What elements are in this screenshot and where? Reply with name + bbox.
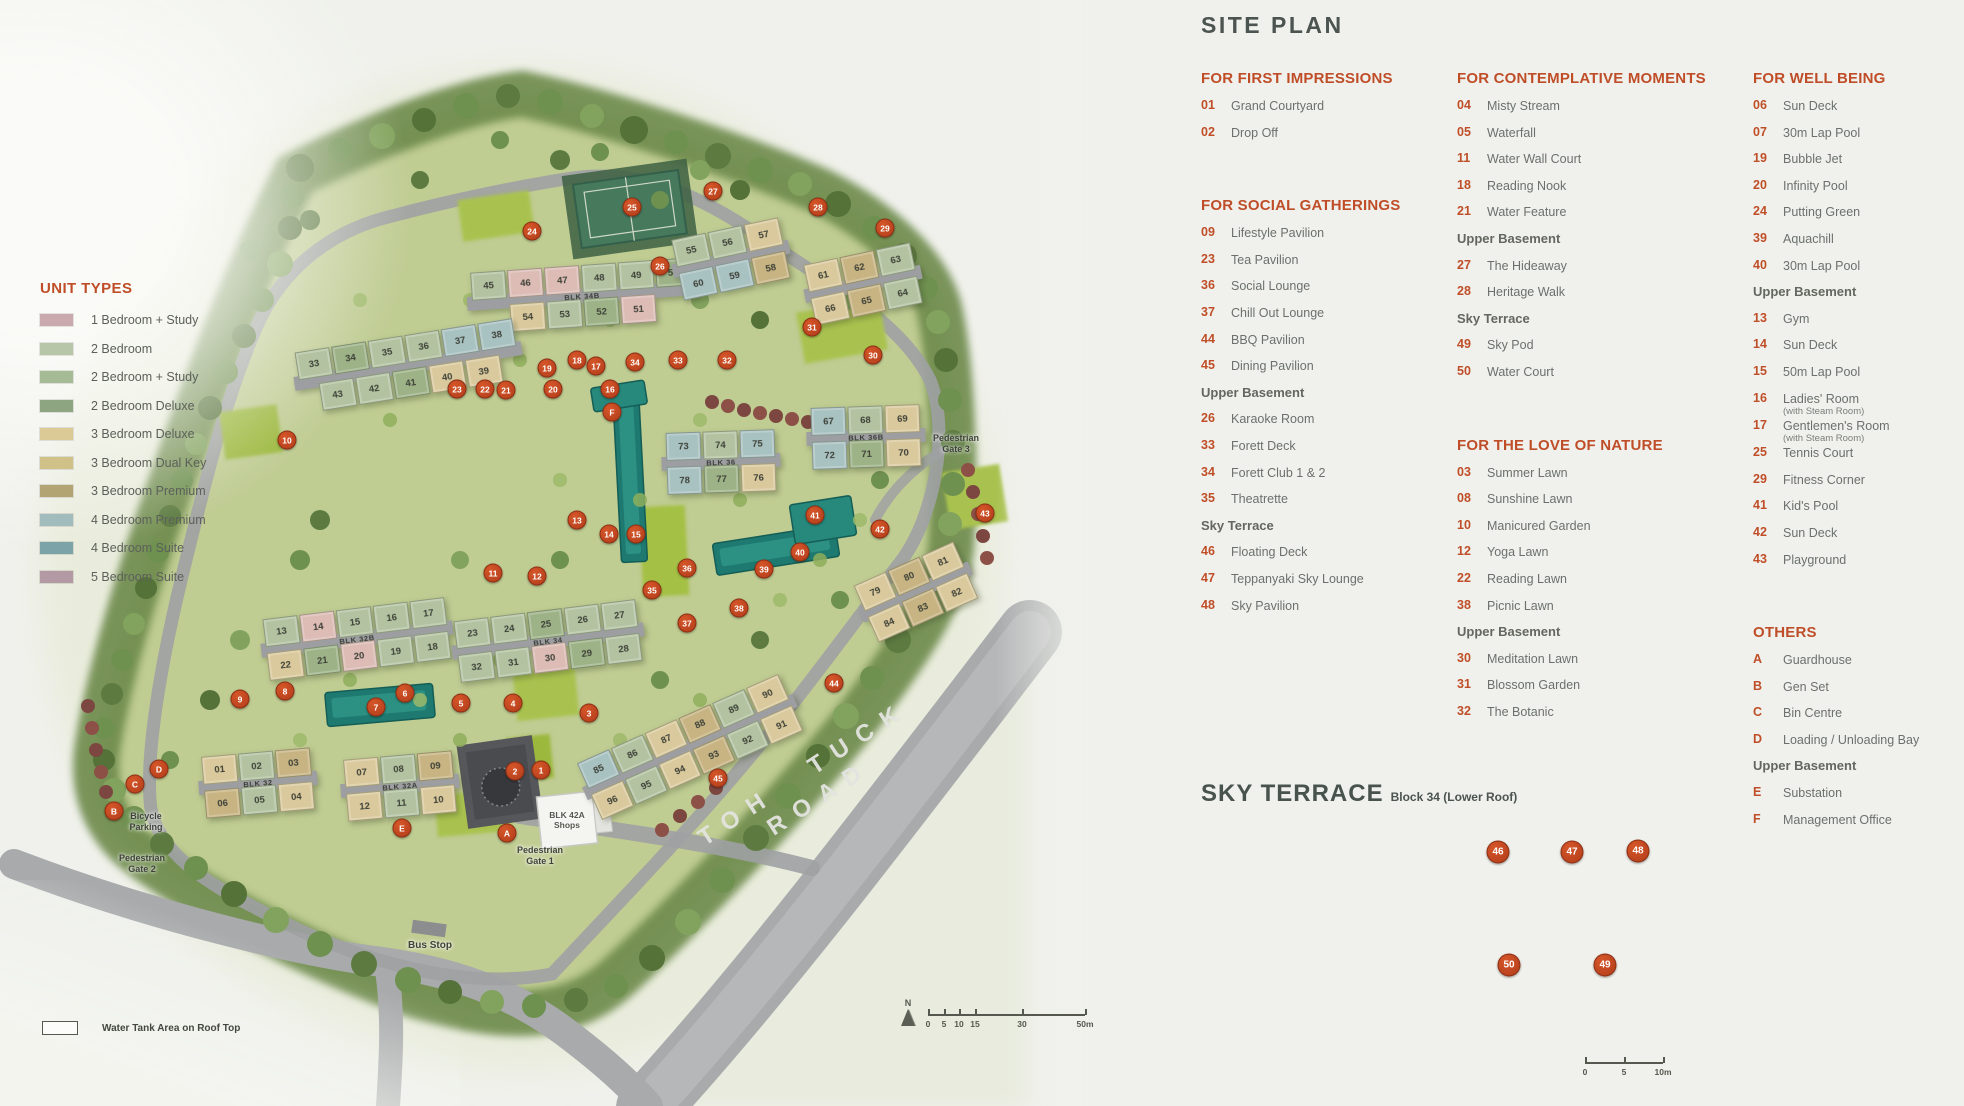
legend-item: 33Forett Deck bbox=[1201, 438, 1447, 465]
legend-item-label: Yoga Lawn bbox=[1487, 544, 1548, 559]
water-tank-label: Water Tank Area on Roof Top bbox=[102, 1023, 240, 1034]
legend-item-number: 29 bbox=[1753, 472, 1783, 486]
legend-item-number: 08 bbox=[1457, 491, 1487, 505]
unit-type-swatch bbox=[40, 343, 73, 355]
scale-tick bbox=[1585, 1057, 1587, 1063]
map-marker-5: 5 bbox=[452, 694, 471, 713]
sky-terrace-marker-47: 47 bbox=[1561, 841, 1584, 864]
legend-item-label: BBQ Pavilion bbox=[1231, 332, 1305, 347]
legend-item-label: Tea Pavilion bbox=[1231, 252, 1298, 267]
legend-item-number: 47 bbox=[1201, 571, 1231, 585]
unit-type-swatch bbox=[40, 371, 73, 383]
map-marker-4: 4 bbox=[504, 694, 523, 713]
building-unit: 04 bbox=[278, 781, 315, 812]
legend-item: 29Fitness Corner bbox=[1753, 472, 1961, 499]
unit-type-swatch bbox=[40, 485, 73, 497]
legend-item-number: 40 bbox=[1753, 258, 1783, 272]
legend-item-number: 28 bbox=[1457, 284, 1487, 298]
legend-item-number: 31 bbox=[1457, 677, 1487, 691]
legend-item: 06Sun Deck bbox=[1753, 98, 1961, 125]
legend-item: 26Karaoke Room bbox=[1201, 411, 1447, 438]
building-cluster-blk-32a: BLK 32A070809121110 bbox=[343, 750, 457, 821]
building-unit: 60 bbox=[678, 266, 718, 301]
map-marker-38: 38 bbox=[730, 599, 749, 618]
map-marker-26: 26 bbox=[651, 257, 670, 276]
legend-item: 20Infinity Pool bbox=[1753, 178, 1961, 205]
legend-item-number: 17 bbox=[1753, 418, 1783, 432]
map-marker-42: 42 bbox=[871, 520, 890, 539]
legend-item-number: 38 bbox=[1457, 598, 1487, 612]
legend-column-2: FOR CONTEMPLATIVE MOMENTS04Misty Stream0… bbox=[1457, 70, 1745, 776]
scale-tick bbox=[1022, 1009, 1024, 1015]
legend-item-label: Putting Green bbox=[1783, 204, 1860, 219]
legend-item-label: Gen Set bbox=[1783, 679, 1829, 694]
unit-type-label: 2 Bedroom + Study bbox=[91, 370, 198, 384]
map-marker-8: 8 bbox=[276, 682, 295, 701]
legend-item-label: Meditation Lawn bbox=[1487, 651, 1578, 666]
building-unit: 70 bbox=[886, 438, 922, 467]
legend-item-label: Kid's Pool bbox=[1783, 498, 1838, 513]
scale-tick bbox=[1624, 1057, 1626, 1063]
legend-item-label: Grand Courtyard bbox=[1231, 98, 1324, 113]
legend-item-label: Infinity Pool bbox=[1783, 178, 1848, 193]
bus-stop-label: Bus Stop bbox=[408, 940, 452, 952]
legend-section: FOR SOCIAL GATHERINGS09Lifestyle Pavilio… bbox=[1201, 197, 1447, 624]
map-marker-34: 34 bbox=[626, 353, 645, 372]
bicycle-parking-label: Bicycle Parking bbox=[129, 811, 162, 833]
legend-item-number: 13 bbox=[1753, 311, 1783, 325]
unit-types-title: UNIT TYPES bbox=[40, 280, 206, 297]
legend-item-label: Sky Pavilion bbox=[1231, 598, 1299, 613]
legend-item-number: 48 bbox=[1201, 598, 1231, 612]
map-marker-31: 31 bbox=[803, 318, 822, 337]
legend-item: 19Bubble Jet bbox=[1753, 151, 1961, 178]
building-unit: 65 bbox=[847, 283, 887, 318]
legend-subheading: Upper Basement bbox=[1753, 758, 1961, 785]
map-marker-3: 3 bbox=[580, 704, 599, 723]
building-unit: 24 bbox=[490, 613, 528, 645]
map-marker-40: 40 bbox=[791, 543, 810, 562]
legend-item-label: Reading Nook bbox=[1487, 178, 1566, 193]
map-marker-32: 32 bbox=[718, 351, 737, 370]
legend-item-number: 39 bbox=[1753, 231, 1783, 245]
legend-item-label: Substation bbox=[1783, 785, 1842, 800]
legend-item: 34Forett Club 1 & 2 bbox=[1201, 465, 1447, 492]
map-marker-12: 12 bbox=[528, 567, 547, 586]
legend-item-number: 41 bbox=[1753, 498, 1783, 512]
legend-item-number: 25 bbox=[1753, 445, 1783, 459]
building-unit: 01 bbox=[201, 754, 238, 785]
legend-section: FOR WELL BEING06Sun Deck0730m Lap Pool19… bbox=[1753, 70, 1961, 578]
legend-item: 37Chill Out Lounge bbox=[1201, 305, 1447, 332]
map-marker-36: 36 bbox=[678, 559, 697, 578]
sky-terrace-subtitle: Block 34 (Lower Roof) bbox=[1391, 790, 1518, 804]
legend-item: 12Yoga Lawn bbox=[1457, 544, 1745, 571]
legend-item-label: Forett Club 1 & 2 bbox=[1231, 465, 1326, 480]
legend-subheading: Upper Basement bbox=[1457, 624, 1745, 651]
legend-item: 09Lifestyle Pavilion bbox=[1201, 225, 1447, 252]
legend-item-label: Forett Deck bbox=[1231, 438, 1296, 453]
legend-item-label: Aquachill bbox=[1783, 231, 1834, 246]
legend-subheading: Upper Basement bbox=[1457, 231, 1745, 258]
unit-type-label: 3 Bedroom Premium bbox=[91, 484, 206, 498]
map-marker-28: 28 bbox=[809, 198, 828, 217]
legend-item-number: 05 bbox=[1457, 125, 1487, 139]
unit-type-label: 4 Bedroom Suite bbox=[91, 541, 184, 555]
legend-item-number: C bbox=[1753, 705, 1783, 719]
legend-item-number: 44 bbox=[1201, 332, 1231, 346]
scale-tick bbox=[1663, 1057, 1665, 1063]
sky-terrace-scale-bar: 0510m bbox=[1585, 1050, 1675, 1080]
map-marker-18: 18 bbox=[568, 351, 587, 370]
building-unit: 51 bbox=[620, 294, 657, 324]
map-marker-11: 11 bbox=[484, 564, 503, 583]
legend-item: DLoading / Unloading Bay bbox=[1753, 732, 1961, 759]
map-marker-10: 10 bbox=[278, 431, 297, 450]
building-unit: 37 bbox=[441, 324, 480, 357]
legend-item-label: Waterfall bbox=[1487, 125, 1536, 140]
legend-item: 16Ladies' Room(with Steam Room) bbox=[1753, 391, 1961, 418]
legend-item-label: Sun Deck bbox=[1783, 525, 1837, 540]
building-unit: 23 bbox=[453, 617, 491, 649]
legend-item-label: Water Feature bbox=[1487, 204, 1566, 219]
legend-item: 42Sun Deck bbox=[1753, 525, 1961, 552]
legend-item-label: Manicured Garden bbox=[1487, 518, 1591, 533]
map-marker-2: 2 bbox=[506, 762, 525, 781]
unit-type-label: 1 Bedroom + Study bbox=[91, 313, 198, 327]
map-marker-27: 27 bbox=[704, 182, 723, 201]
building-cluster-blk-32: BLK 32010203060504 bbox=[201, 747, 315, 818]
legend-item: 4030m Lap Pool bbox=[1753, 258, 1961, 285]
building-unit: 09 bbox=[417, 750, 454, 781]
building-unit: 30 bbox=[531, 642, 569, 674]
unit-type-row: 2 Bedroom + Study bbox=[40, 370, 206, 384]
legend-item: 10Manicured Garden bbox=[1457, 518, 1745, 545]
legend-item: FManagement Office bbox=[1753, 812, 1961, 839]
building-unit: 59 bbox=[715, 258, 755, 293]
legend-item: 22Reading Lawn bbox=[1457, 571, 1745, 598]
legend-item: 30Meditation Lawn bbox=[1457, 651, 1745, 678]
legend-item-label: Loading / Unloading Bay bbox=[1783, 732, 1919, 747]
map-marker-19: 19 bbox=[538, 359, 557, 378]
map-marker-E: E bbox=[393, 819, 412, 838]
legend-item-note: (with Steam Room) bbox=[1783, 434, 1890, 445]
building-unit: 72 bbox=[812, 441, 848, 470]
legend-item-number: 15 bbox=[1753, 364, 1783, 378]
legend-item: CBin Centre bbox=[1753, 705, 1961, 732]
legend-item: 18Reading Nook bbox=[1457, 178, 1745, 205]
unit-type-row: 2 Bedroom Deluxe bbox=[40, 399, 206, 413]
legend-item: 45Dining Pavilion bbox=[1201, 358, 1447, 385]
legend-item: 47Teppanyaki Sky Lounge bbox=[1201, 571, 1447, 598]
unit-type-label: 4 Bedroom Premium bbox=[91, 513, 206, 527]
legend-item-label: Sun Deck bbox=[1783, 98, 1837, 113]
legend-item-number: 19 bbox=[1753, 151, 1783, 165]
blk-42a-shops-label: BLK 42A Shops bbox=[549, 810, 584, 830]
building-unit: 20 bbox=[340, 640, 378, 672]
legend-item-label: Playground bbox=[1783, 552, 1846, 567]
unit-type-swatch bbox=[40, 542, 73, 554]
map-marker-39: 39 bbox=[755, 560, 774, 579]
building-unit: 17 bbox=[409, 597, 447, 629]
map-marker-24: 24 bbox=[523, 222, 542, 241]
scale-label: 5 bbox=[1622, 1067, 1627, 1077]
unit-type-label: 5 Bedroom Suite bbox=[91, 570, 184, 584]
legend-item: 11Water Wall Court bbox=[1457, 151, 1745, 178]
building-unit: 68 bbox=[847, 405, 883, 434]
unit-type-swatch bbox=[40, 571, 73, 583]
unit-type-swatch bbox=[40, 314, 73, 326]
legend-item: 38Picnic Lawn bbox=[1457, 598, 1745, 625]
water-tank-swatch bbox=[42, 1021, 78, 1035]
legend-item: 21Water Feature bbox=[1457, 204, 1745, 231]
map-marker-B: B bbox=[105, 802, 124, 821]
building-unit: 33 bbox=[295, 347, 334, 380]
water-tank-note: Water Tank Area on Roof Top bbox=[42, 1021, 240, 1035]
unit-type-swatch bbox=[40, 400, 73, 412]
map-marker-6: 6 bbox=[396, 684, 415, 703]
map-marker-14: 14 bbox=[600, 525, 619, 544]
legend-item-number: 07 bbox=[1753, 125, 1783, 139]
legend-item: 14Sun Deck bbox=[1753, 337, 1961, 364]
legend-item-label: Social Lounge bbox=[1231, 278, 1310, 293]
map-marker-15: 15 bbox=[627, 525, 646, 544]
building-unit: 47 bbox=[544, 265, 581, 295]
legend-item-label: Ladies' Room(with Steam Room) bbox=[1783, 391, 1864, 418]
unit-type-row: 3 Bedroom Dual Key bbox=[40, 456, 206, 470]
legend-item-label: Sky Pod bbox=[1487, 337, 1534, 352]
legend-item-label: Theatrette bbox=[1231, 491, 1288, 506]
legend-item-number: 42 bbox=[1753, 525, 1783, 539]
map-marker-17: 17 bbox=[587, 357, 606, 376]
legend-item: 48Sky Pavilion bbox=[1201, 598, 1447, 625]
unit-types-legend: UNIT TYPES 1 Bedroom + Study2 Bedroom2 B… bbox=[40, 280, 206, 598]
building-unit: 02 bbox=[238, 751, 275, 782]
legend-item-number: 35 bbox=[1201, 491, 1231, 505]
scale-tick bbox=[1085, 1009, 1087, 1015]
unit-type-row: 1 Bedroom + Study bbox=[40, 313, 206, 327]
legend-item-label: Gym bbox=[1783, 311, 1809, 326]
legend-item-number: F bbox=[1753, 812, 1783, 826]
building-unit: 52 bbox=[583, 296, 620, 326]
legend-item: 05Waterfall bbox=[1457, 125, 1745, 152]
building-unit: 27 bbox=[600, 599, 638, 631]
legend-item-label: 50m Lap Pool bbox=[1783, 364, 1860, 379]
legend-item: 28Heritage Walk bbox=[1457, 284, 1745, 311]
legend-item-number: 12 bbox=[1457, 544, 1487, 558]
legend-item-number: 01 bbox=[1201, 98, 1231, 112]
legend-item-label: Heritage Walk bbox=[1487, 284, 1565, 299]
building-unit: 46 bbox=[507, 268, 544, 298]
legend-item-label: Reading Lawn bbox=[1487, 571, 1567, 586]
building-cluster: 616263666564 bbox=[803, 242, 923, 325]
legend-section-title: OTHERS bbox=[1753, 624, 1961, 641]
north-arrow-icon bbox=[901, 1009, 915, 1026]
map-marker-1: 1 bbox=[532, 761, 551, 780]
map-marker-41: 41 bbox=[806, 506, 825, 525]
map-marker-7: 7 bbox=[367, 698, 386, 717]
legend-item: 17Gentlemen's Room(with Steam Room) bbox=[1753, 418, 1961, 445]
building-unit: 18 bbox=[413, 631, 451, 663]
building-unit: 67 bbox=[810, 407, 846, 436]
legend-item-number: 10 bbox=[1457, 518, 1487, 532]
building-cluster: 3334353637384342414039 bbox=[295, 318, 522, 414]
unit-type-label: 3 Bedroom Deluxe bbox=[91, 427, 195, 441]
legend-item-number: 18 bbox=[1457, 178, 1487, 192]
legend-item: 35Theatrette bbox=[1201, 491, 1447, 518]
building-cluster-blk-36: BLK 36737475787776 bbox=[665, 429, 776, 495]
building-unit: 31 bbox=[494, 646, 532, 678]
building-unit: 54 bbox=[509, 302, 546, 332]
legend-section: OTHERSAGuardhouseBGen SetCBin CentreDLoa… bbox=[1753, 624, 1961, 838]
unit-type-row: 3 Bedroom Premium bbox=[40, 484, 206, 498]
legend-subheading: Sky Terrace bbox=[1201, 518, 1447, 545]
building-unit: 69 bbox=[884, 404, 920, 433]
legend-item: 46Floating Deck bbox=[1201, 544, 1447, 571]
building-unit: 26 bbox=[564, 604, 602, 636]
unit-type-swatch bbox=[40, 428, 73, 440]
legend-item-number: 43 bbox=[1753, 552, 1783, 566]
legend-section: FOR THE LOVE OF NATURE03Summer Lawn08Sun… bbox=[1457, 437, 1745, 731]
legend-item-number: 50 bbox=[1457, 364, 1487, 378]
building-unit: 42 bbox=[355, 372, 394, 405]
building-unit: 74 bbox=[702, 430, 738, 459]
legend-item-number: 22 bbox=[1457, 571, 1487, 585]
map-marker-21: 21 bbox=[497, 381, 516, 400]
scale-tick bbox=[959, 1009, 961, 1015]
scale-tick bbox=[928, 1009, 930, 1015]
legend-section-title: FOR THE LOVE OF NATURE bbox=[1457, 437, 1745, 454]
building-unit: 49 bbox=[618, 260, 655, 290]
legend-item: 13Gym bbox=[1753, 311, 1961, 338]
building-unit: 41 bbox=[391, 366, 430, 399]
legend-subheading: Upper Basement bbox=[1201, 385, 1447, 412]
unit-type-row: 2 Bedroom bbox=[40, 342, 206, 356]
legend-item-label: Lifestyle Pavilion bbox=[1231, 225, 1324, 240]
legend-item-number: 30 bbox=[1457, 651, 1487, 665]
scale-label: 5 bbox=[942, 1019, 947, 1029]
scale-label: 30 bbox=[1017, 1019, 1026, 1029]
map-marker-C: C bbox=[126, 775, 145, 794]
building-row: 727170 bbox=[812, 438, 922, 470]
unit-type-swatch bbox=[40, 514, 73, 526]
legend-item-label: Bubble Jet bbox=[1783, 151, 1842, 166]
legend-item-label: Teppanyaki Sky Lounge bbox=[1231, 571, 1364, 586]
map-marker-30: 30 bbox=[864, 346, 883, 365]
legend-item: 49Sky Pod bbox=[1457, 337, 1745, 364]
legend-item: 41Kid's Pool bbox=[1753, 498, 1961, 525]
building-unit: 48 bbox=[581, 263, 618, 293]
map-marker-35: 35 bbox=[643, 581, 662, 600]
sky-terrace-heading: SKY TERRACEBlock 34 (Lower Roof) bbox=[1201, 780, 1517, 808]
building-cluster: 798081848382 bbox=[854, 542, 979, 643]
legend-item-label: Tennis Court bbox=[1783, 445, 1853, 460]
legend-item-note: (with Steam Room) bbox=[1783, 407, 1864, 418]
legend-section-title: FOR WELL BEING bbox=[1753, 70, 1961, 87]
building-unit: 34 bbox=[331, 341, 370, 374]
legend-item: 36Social Lounge bbox=[1201, 278, 1447, 305]
scale-tick bbox=[944, 1009, 946, 1015]
sky-terrace-marker-50: 50 bbox=[1498, 954, 1521, 977]
legend-item-number: 11 bbox=[1457, 151, 1487, 165]
map-marker-D: D bbox=[150, 760, 169, 779]
building-unit: 07 bbox=[343, 757, 380, 788]
building-unit: 75 bbox=[739, 429, 775, 458]
building-unit: 58 bbox=[751, 251, 791, 286]
map-marker-33: 33 bbox=[669, 351, 688, 370]
legend-item-label: Summer Lawn bbox=[1487, 465, 1568, 480]
legend-subheading: Sky Terrace bbox=[1457, 311, 1745, 338]
legend-item: ESubstation bbox=[1753, 785, 1961, 812]
legend-item-number: 21 bbox=[1457, 204, 1487, 218]
building-row: 676869 bbox=[810, 404, 920, 436]
map-marker-37: 37 bbox=[678, 614, 697, 633]
legend-item-label: Chill Out Lounge bbox=[1231, 305, 1324, 320]
building-unit: 10 bbox=[420, 784, 457, 815]
north-arrow: N bbox=[898, 998, 918, 1026]
sky-terrace-marker-46: 46 bbox=[1487, 841, 1510, 864]
pedestrian-gate-1-label: Pedestrian Gate 1 bbox=[517, 845, 563, 867]
scale-label: 50m bbox=[1076, 1019, 1093, 1029]
building-unit: 16 bbox=[373, 602, 411, 634]
building-unit: 25 bbox=[527, 608, 565, 640]
building-unit: 05 bbox=[241, 784, 278, 815]
building-unit: 45 bbox=[470, 270, 507, 300]
legend-item: AGuardhouse bbox=[1753, 652, 1961, 679]
map-marker-9: 9 bbox=[231, 690, 250, 709]
map-marker-25: 25 bbox=[623, 198, 642, 217]
legend-item-number: 46 bbox=[1201, 544, 1231, 558]
building-unit: 64 bbox=[883, 276, 923, 311]
legend-item: 02Drop Off bbox=[1201, 125, 1447, 152]
building-unit: 03 bbox=[275, 747, 312, 778]
pedestrian-gate-3-label: Pedestrian Gate 3 bbox=[933, 433, 979, 455]
legend-item-label: Sun Deck bbox=[1783, 337, 1837, 352]
legend-item-label: 30m Lap Pool bbox=[1783, 258, 1860, 273]
legend-item: 31Blossom Garden bbox=[1457, 677, 1745, 704]
building-unit: 15 bbox=[336, 606, 374, 638]
map-marker-44: 44 bbox=[825, 674, 844, 693]
legend-item: 25Tennis Court bbox=[1753, 445, 1961, 472]
legend-item-number: 03 bbox=[1457, 465, 1487, 479]
legend-item-number: 37 bbox=[1201, 305, 1231, 319]
legend-item-label: Drop Off bbox=[1231, 125, 1278, 140]
legend-item: 50Water Court bbox=[1457, 364, 1745, 391]
legend-item-label: Management Office bbox=[1783, 812, 1892, 827]
legend-item-label: Sunshine Lawn bbox=[1487, 491, 1572, 506]
building-unit: 53 bbox=[546, 299, 583, 329]
legend-item: 1550m Lap Pool bbox=[1753, 364, 1961, 391]
map-scale-bar: 0510153050m bbox=[928, 1002, 1098, 1032]
building-row: 787776 bbox=[667, 463, 777, 495]
legend-item: 39Aquachill bbox=[1753, 231, 1961, 258]
legend-item-number: 34 bbox=[1201, 465, 1231, 479]
legend-section-title: FOR FIRST IMPRESSIONS bbox=[1201, 70, 1447, 87]
building-unit: 08 bbox=[380, 754, 417, 785]
building-unit: 36 bbox=[404, 330, 443, 363]
legend-subheading: Upper Basement bbox=[1753, 284, 1961, 311]
legend-item-label: Guardhouse bbox=[1783, 652, 1852, 667]
building-row: 737475 bbox=[665, 429, 775, 461]
legend-item-label: Bin Centre bbox=[1783, 705, 1842, 720]
building-unit: 19 bbox=[377, 635, 415, 667]
map-marker-13: 13 bbox=[568, 511, 587, 530]
unit-types-rows: 1 Bedroom + Study2 Bedroom2 Bedroom + St… bbox=[40, 313, 206, 584]
legend-item-label: Floating Deck bbox=[1231, 544, 1307, 559]
legend-item-number: 24 bbox=[1753, 204, 1783, 218]
legend-item-number: D bbox=[1753, 732, 1783, 746]
legend-item-number: 49 bbox=[1457, 337, 1487, 351]
